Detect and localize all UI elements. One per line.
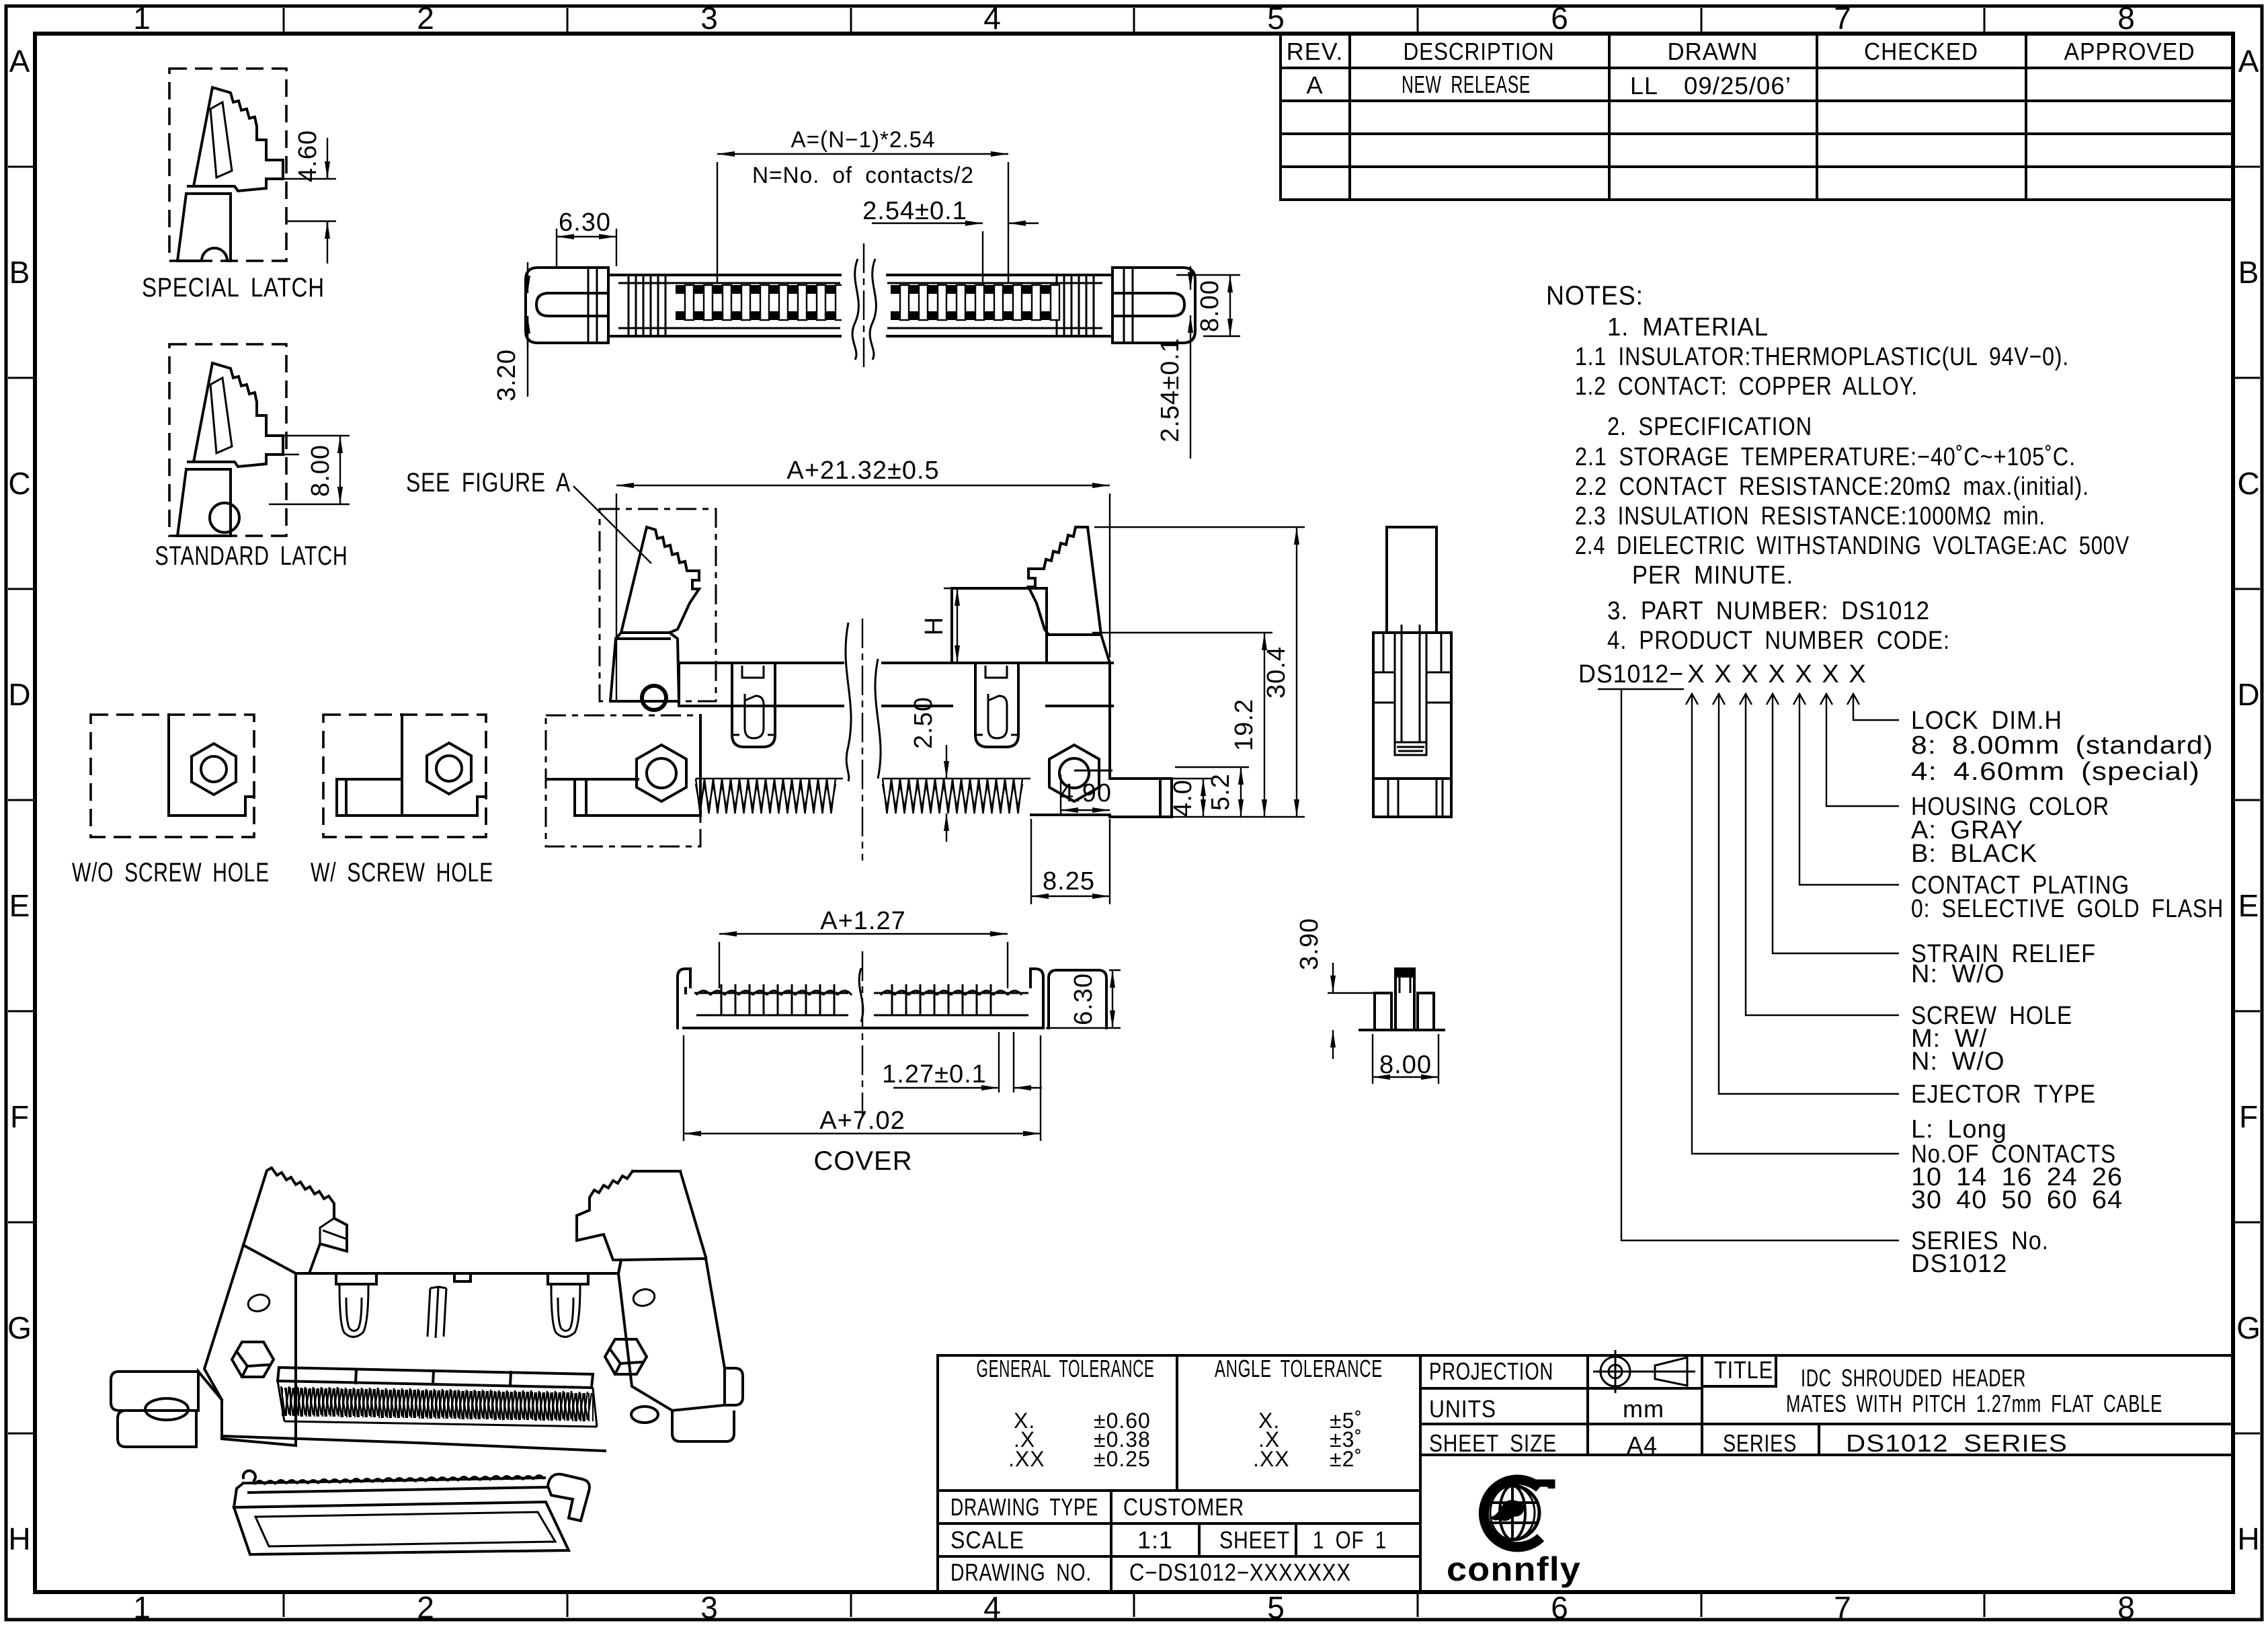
svg-text:C: C: [2237, 466, 2259, 501]
svg-text:SHEET: SHEET: [1219, 1526, 1290, 1554]
svg-text:.XX: .XX: [1008, 1447, 1045, 1471]
svg-text:6.30: 6.30: [559, 208, 611, 237]
svg-text:4: 4.60mm (special): 4: 4.60mm (special): [1911, 758, 2200, 786]
svg-text:EJECTOR TYPE: EJECTOR TYPE: [1911, 1080, 2096, 1109]
svg-text:SCALE: SCALE: [950, 1526, 1024, 1554]
svg-text:GENERAL TOLERANCE: GENERAL TOLERANCE: [977, 1355, 1155, 1382]
svg-text:DS1012: DS1012: [1911, 1250, 2007, 1278]
svg-text:DRAWING NO.: DRAWING NO.: [950, 1558, 1092, 1586]
svg-text:2: 2: [417, 1590, 434, 1625]
svg-text:mm: mm: [1623, 1395, 1664, 1423]
svg-text:8: 8.00mm (standard): 8: 8.00mm (standard): [1911, 731, 2214, 760]
svg-text:G: G: [2236, 1310, 2261, 1345]
svg-text:IDC SHROUDED HEADER: IDC SHROUDED HEADER: [1801, 1364, 2026, 1392]
svg-text:4: 4: [983, 1, 1001, 36]
svg-text:LOCK DIM.H: LOCK DIM.H: [1911, 707, 2062, 735]
svg-text:SERIES: SERIES: [1723, 1429, 1797, 1457]
svg-text:4. PRODUCT NUMBER CODE:: 4. PRODUCT NUMBER CODE:: [1607, 627, 1950, 655]
svg-text:2.50: 2.50: [909, 697, 938, 749]
svg-text:A=(N−1)*2.54: A=(N−1)*2.54: [791, 127, 936, 153]
svg-text:±2˚: ±2˚: [1330, 1447, 1363, 1471]
svg-text:COVER: COVER: [813, 1146, 912, 1176]
svg-text:B: B: [2238, 255, 2259, 290]
svg-text:F: F: [10, 1099, 29, 1134]
svg-text:TITLE: TITLE: [1714, 1356, 1773, 1384]
svg-text:DS1012−: DS1012−: [1578, 660, 1684, 688]
svg-text:X: X: [1714, 660, 1731, 688]
svg-text:NOTES:: NOTES:: [1546, 281, 1644, 311]
svg-text:4.90: 4.90: [1059, 779, 1112, 807]
svg-text:3.20: 3.20: [493, 349, 521, 401]
svg-text:PER MINUTE.: PER MINUTE.: [1632, 561, 1793, 590]
svg-text:6: 6: [1551, 1, 1568, 36]
svg-text:DS1012 SERIES: DS1012 SERIES: [1846, 1429, 2068, 1457]
svg-text:NEW RELEASE: NEW RELEASE: [1402, 71, 1531, 98]
svg-text:8: 8: [2117, 1, 2135, 36]
svg-text:6.30: 6.30: [1069, 973, 1098, 1025]
svg-text:A: A: [1306, 71, 1323, 99]
svg-text:APPROVED: APPROVED: [2064, 38, 2195, 65]
svg-text:DRAWING TYPE: DRAWING TYPE: [950, 1493, 1098, 1521]
svg-text:SEE FIGURE A: SEE FIGURE A: [406, 468, 571, 498]
svg-text:2.54±0.1: 2.54±0.1: [862, 197, 967, 225]
svg-text:E: E: [2238, 888, 2259, 923]
svg-text:B: B: [9, 255, 30, 290]
svg-text:5: 5: [1267, 1, 1285, 36]
svg-text:A: A: [9, 44, 30, 79]
svg-text:1.2 CONTACT: COPPER ALLOY.: 1.2 CONTACT: COPPER ALLOY.: [1575, 372, 1918, 401]
svg-text:X: X: [1687, 660, 1704, 688]
svg-text:PROJECTION: PROJECTION: [1429, 1357, 1553, 1385]
svg-text:X: X: [1849, 660, 1865, 688]
svg-text:1: 1: [133, 1590, 151, 1625]
svg-text:8.00: 8.00: [307, 444, 335, 497]
svg-text:2.2 CONTACT RESISTANCE:20mΩ: 2.2 CONTACT RESISTANCE:20mΩ max.(initial…: [1575, 473, 2089, 501]
svg-text:4.60: 4.60: [294, 130, 322, 182]
svg-text:8.00: 8.00: [1379, 1051, 1432, 1079]
svg-text:2. SPECIFICATION: 2. SPECIFICATION: [1607, 413, 1812, 441]
svg-text:1.27±0.1: 1.27±0.1: [882, 1060, 987, 1088]
svg-text:X: X: [1741, 660, 1758, 688]
svg-text:30 40 50 60 64: 30 40 50 60 64: [1911, 1186, 2123, 1214]
svg-text:L: Long: L: Long: [1911, 1115, 2007, 1144]
svg-text:8: 8: [2117, 1590, 2135, 1625]
svg-text:X: X: [1768, 660, 1785, 688]
svg-text:UNITS: UNITS: [1429, 1395, 1496, 1423]
svg-text:1:1: 1:1: [1137, 1526, 1173, 1554]
svg-text:C: C: [8, 466, 30, 501]
svg-text:2.3 INSULATION RESISTANCE:10: 2.3 INSULATION RESISTANCE:1000MΩ min.: [1575, 502, 2046, 530]
svg-text:7: 7: [1834, 1590, 1851, 1625]
svg-text:2.1 STORAGE TEMPERATURE:−40˚: 2.1 STORAGE TEMPERATURE:−40˚C~+105˚C.: [1575, 443, 2076, 471]
svg-text:H: H: [8, 1521, 30, 1556]
svg-text:±0.25: ±0.25: [1094, 1447, 1151, 1471]
svg-text:X: X: [1795, 660, 1812, 688]
svg-text:N: W/O: N: W/O: [1911, 1047, 2005, 1076]
svg-text:C−DS1012−XXXXXXX: C−DS1012−XXXXXXX: [1129, 1558, 1351, 1586]
svg-text:5: 5: [1267, 1590, 1285, 1625]
svg-text:W/ SCREW HOLE: W/ SCREW HOLE: [311, 858, 493, 887]
svg-text:CUSTOMER: CUSTOMER: [1123, 1493, 1244, 1521]
svg-text:G: G: [7, 1310, 32, 1345]
svg-text:connfly: connfly: [1447, 1550, 1581, 1588]
svg-text:3: 3: [700, 1590, 718, 1625]
svg-text:A: A: [2238, 44, 2259, 79]
svg-text:A+21.32±0.5: A+21.32±0.5: [786, 457, 939, 485]
svg-text:1.1 INSULATOR:THERMOPLASTIC(U: 1.1 INSULATOR:THERMOPLASTIC(UL 94V−0).: [1575, 343, 2069, 371]
svg-text:3. PART NUMBER: DS1012: 3. PART NUMBER: DS1012: [1607, 597, 1930, 625]
svg-text:STANDARD LATCH: STANDARD LATCH: [155, 541, 348, 571]
svg-text:5.2: 5.2: [1207, 773, 1235, 811]
svg-text:8.25: 8.25: [1043, 867, 1095, 896]
svg-text:H: H: [920, 617, 948, 635]
svg-text:N: W/O: N: W/O: [1911, 960, 2005, 988]
svg-text:SHEET SIZE: SHEET SIZE: [1429, 1429, 1557, 1457]
svg-text:.XX: .XX: [1253, 1447, 1290, 1471]
svg-text:F: F: [2239, 1099, 2258, 1134]
svg-text:REV.: REV.: [1287, 38, 1344, 65]
svg-text:B: BLACK: B: BLACK: [1911, 840, 2037, 868]
svg-text:6: 6: [1551, 1590, 1568, 1625]
svg-text:1: 1: [133, 1, 151, 36]
svg-text:30.4: 30.4: [1262, 646, 1291, 699]
svg-text:8.00: 8.00: [1196, 280, 1224, 332]
svg-text:DRAWN: DRAWN: [1668, 38, 1758, 65]
svg-text:09/25/06’: 09/25/06’: [1684, 72, 1791, 100]
svg-text:ANGLE TOLERANCE: ANGLE TOLERANCE: [1215, 1355, 1383, 1382]
svg-text:LL: LL: [1630, 72, 1658, 100]
svg-text:MATES WITH PITCH 1.27mm FL: MATES WITH PITCH 1.27mm FLAT CABLE: [1786, 1390, 2162, 1417]
svg-text:19.2: 19.2: [1230, 699, 1258, 751]
svg-text:1 OF 1: 1 OF 1: [1313, 1526, 1387, 1554]
svg-text:DESCRIPTION: DESCRIPTION: [1404, 38, 1555, 65]
svg-text:3.90: 3.90: [1295, 918, 1324, 970]
svg-text:N=No. of contacts/2: N=No. of contacts/2: [752, 163, 974, 188]
svg-text:4.0: 4.0: [1169, 779, 1197, 817]
svg-text:A4: A4: [1627, 1431, 1658, 1459]
svg-text:7: 7: [1834, 1, 1851, 36]
svg-text:E: E: [9, 888, 30, 923]
svg-text:SPECIAL LATCH: SPECIAL LATCH: [142, 273, 325, 303]
svg-text:2: 2: [417, 1, 434, 36]
svg-text:4: 4: [983, 1590, 1001, 1625]
svg-text:W/O SCREW HOLE: W/O SCREW HOLE: [72, 858, 270, 887]
svg-text:A+1.27: A+1.27: [820, 907, 906, 935]
svg-text:2.54±0.1: 2.54±0.1: [1156, 338, 1184, 442]
svg-text:0: SELECTIVE GOLD FLASH: 0: SELECTIVE GOLD FLASH: [1911, 895, 2224, 923]
svg-text:D: D: [2237, 677, 2259, 712]
svg-text:H: H: [2237, 1521, 2259, 1556]
svg-text:3: 3: [700, 1, 718, 36]
svg-text:A+7.02: A+7.02: [819, 1107, 905, 1135]
svg-text:D: D: [8, 677, 30, 712]
svg-text:2.4 DIELECTRIC WITHSTANDING: 2.4 DIELECTRIC WITHSTANDING VOLTAGE:AC 5…: [1575, 532, 2130, 560]
svg-text:1. MATERIAL: 1. MATERIAL: [1607, 313, 1769, 342]
svg-text:X: X: [1822, 660, 1838, 688]
svg-text:CHECKED: CHECKED: [1864, 38, 1978, 65]
